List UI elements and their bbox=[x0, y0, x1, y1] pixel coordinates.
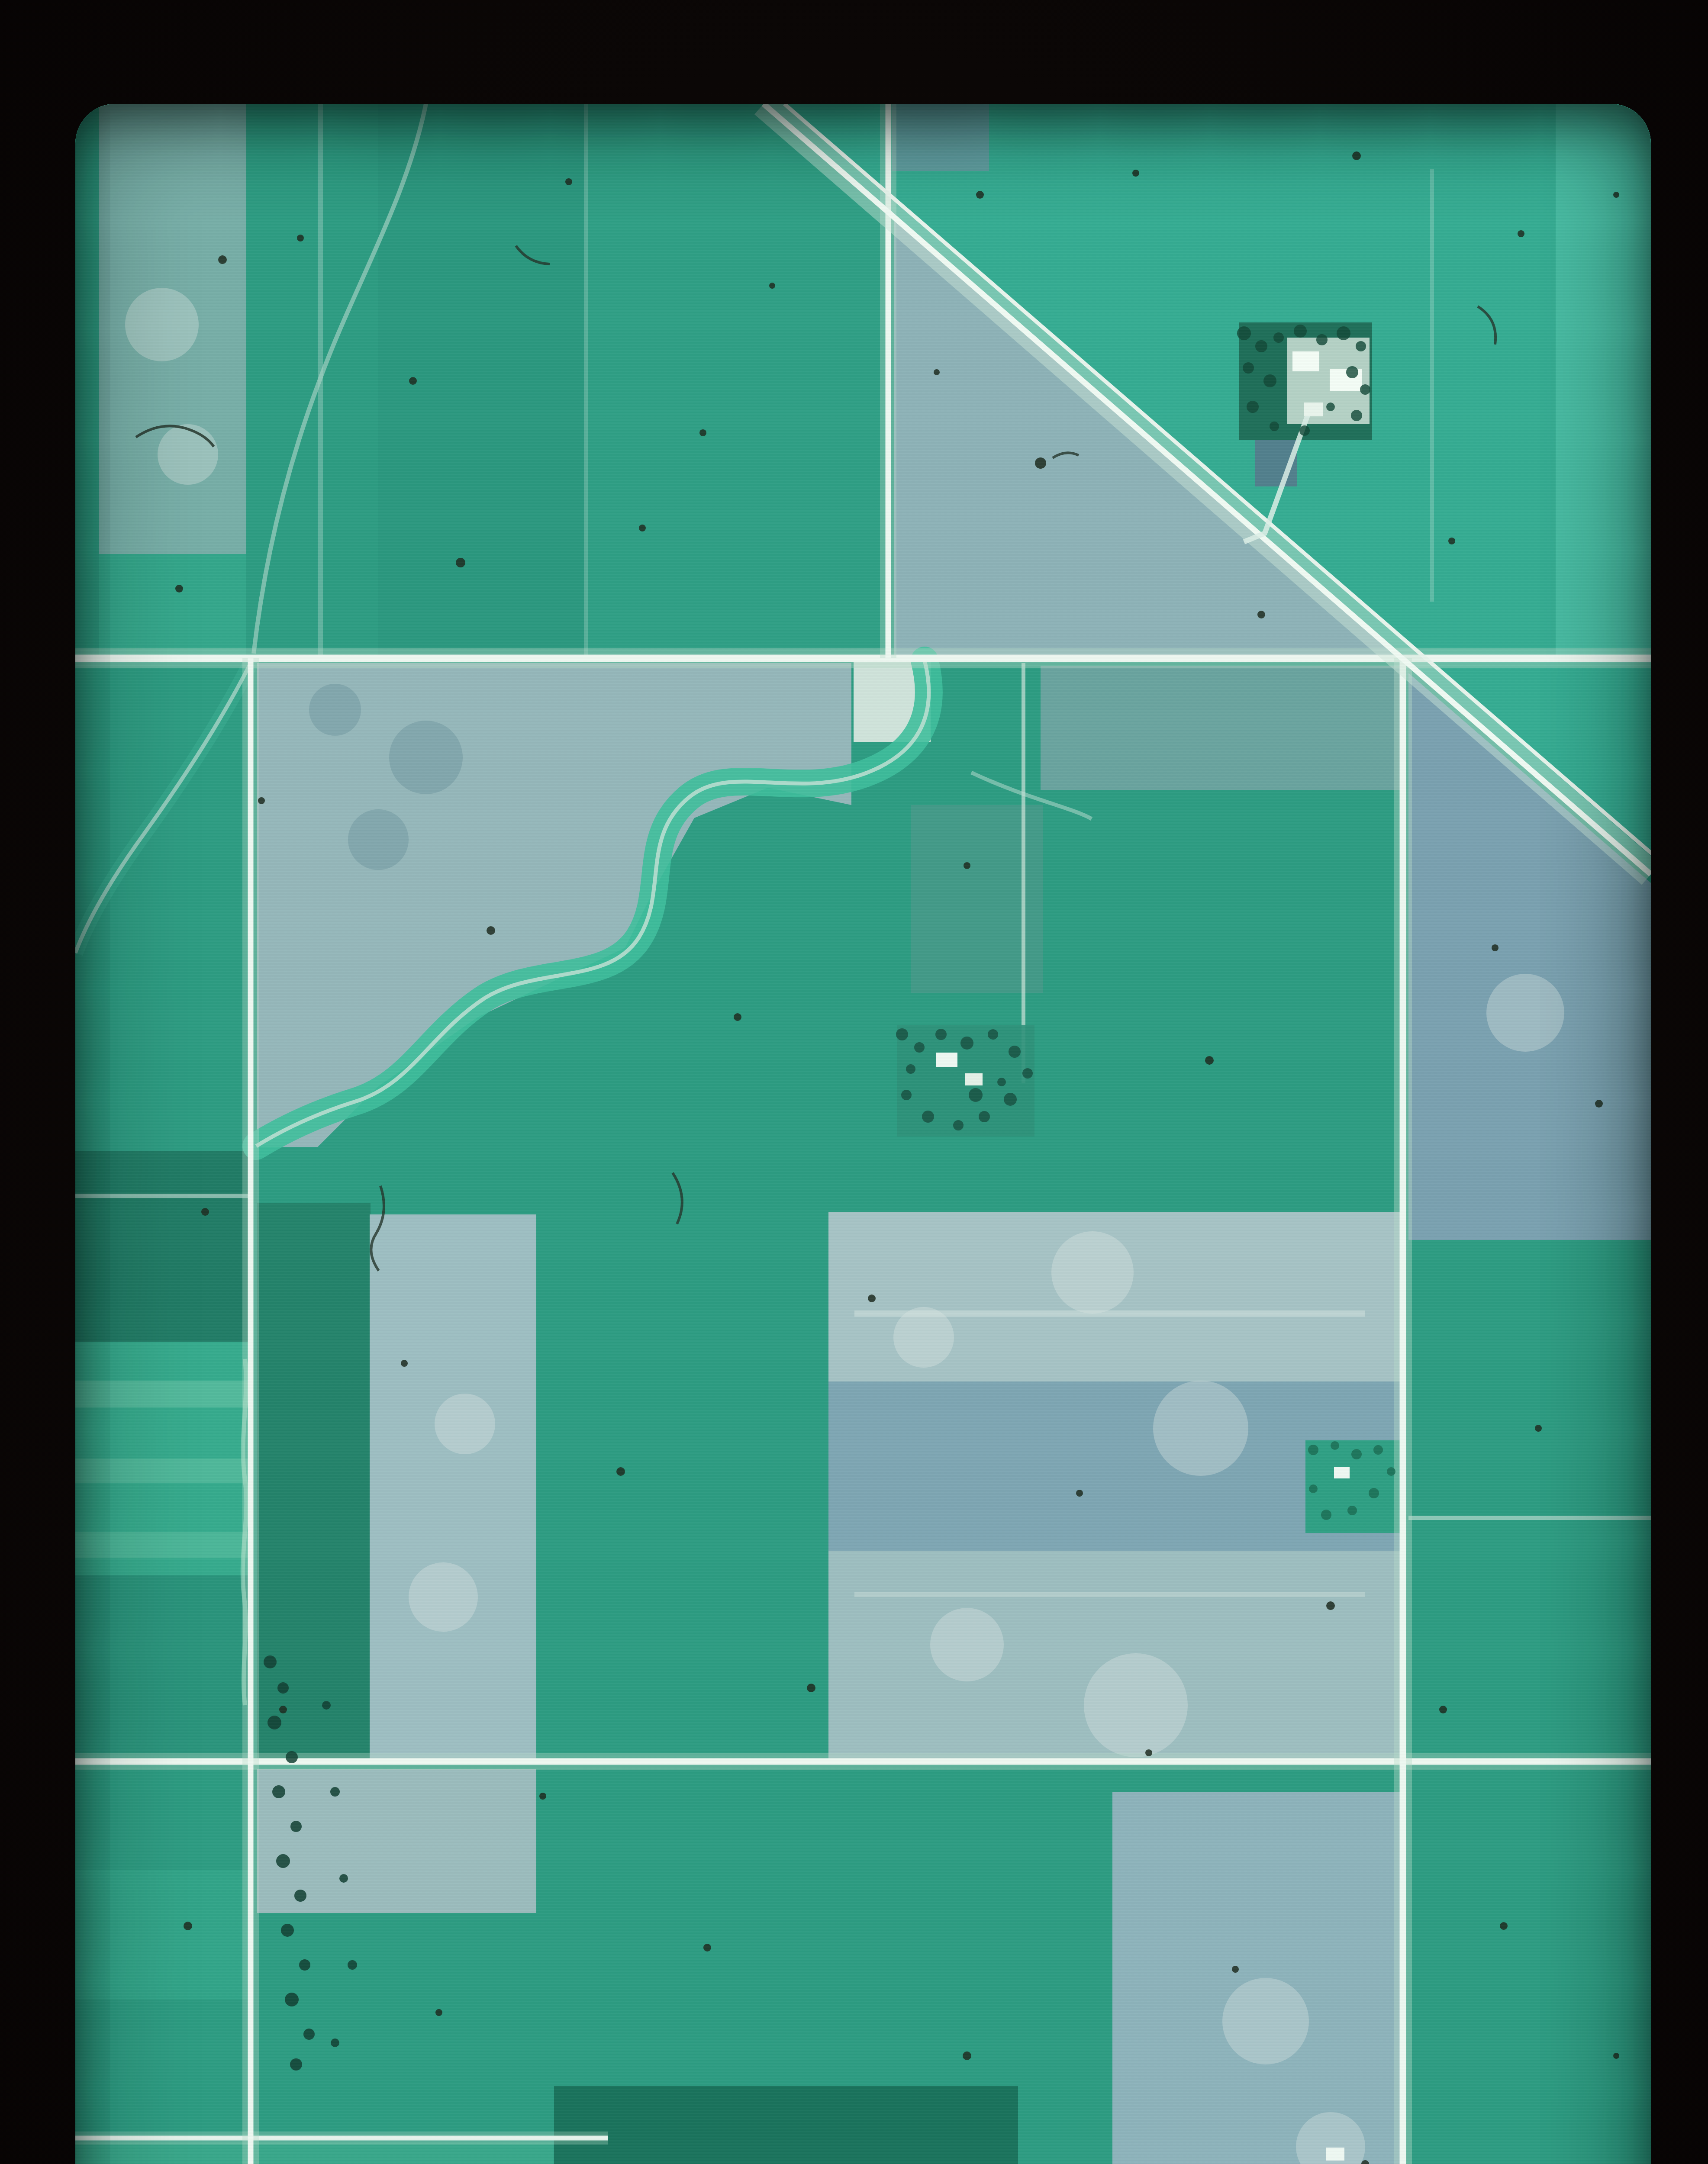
field-r4-left-band bbox=[75, 1870, 251, 2000]
dust-speck bbox=[1613, 192, 1619, 198]
farmstead-3-tree-canopy bbox=[1351, 1449, 1362, 1459]
farmstead-1-building-a bbox=[1292, 351, 1319, 371]
field-r1-left-green-lower bbox=[99, 554, 246, 661]
field-r3-left-dark bbox=[75, 1151, 251, 1342]
fallow-mottle-light bbox=[1222, 1978, 1309, 2064]
field-r3-left-lower bbox=[75, 1575, 251, 1764]
dust-speck bbox=[1500, 1922, 1508, 1930]
dust-speck bbox=[218, 255, 227, 264]
field-boundary-r3-left bbox=[75, 1194, 251, 1198]
field-r3-east-of-road-dark bbox=[257, 1203, 371, 1764]
farmstead-3-tree-canopy bbox=[1331, 1441, 1339, 1450]
farmstead-2-tree-canopy bbox=[906, 1064, 915, 1074]
farmstead-3-tree-canopy bbox=[1321, 1510, 1331, 1520]
dust-speck bbox=[1035, 457, 1046, 469]
farmstead-1-tree-canopy bbox=[1316, 334, 1328, 345]
farmstead-1-tree-canopy bbox=[1243, 362, 1254, 374]
field-r3-left-streak-c bbox=[75, 1532, 251, 1558]
farmstead-3-tree-canopy bbox=[1309, 1485, 1318, 1493]
field-r2-gray-tint bbox=[1041, 666, 1401, 790]
farmstead-2-building-b bbox=[965, 1073, 983, 1085]
dust-speck bbox=[1448, 538, 1455, 544]
fallow-mottle-light bbox=[158, 424, 218, 485]
farmstead-2-tree-canopy bbox=[979, 1111, 990, 1122]
aerial-photo-canvas bbox=[75, 104, 1651, 2164]
farmstead-1-tree-canopy bbox=[1346, 366, 1358, 378]
dust-speck bbox=[616, 1467, 625, 1476]
white-barn-west-of-road bbox=[1326, 2148, 1344, 2161]
dust-speck bbox=[699, 429, 706, 436]
dust-speck bbox=[1352, 151, 1361, 160]
shelterbelt-roadside-trees bbox=[285, 1993, 299, 2006]
shelterbelt-roadside-trees bbox=[303, 2029, 315, 2040]
dust-speck bbox=[1492, 944, 1499, 951]
fallow-mottle-light bbox=[893, 1307, 954, 1368]
dust-speck bbox=[435, 2009, 442, 2016]
farmstead-1-tree-canopy bbox=[1356, 341, 1366, 351]
shelterbelt-roadside-trees bbox=[264, 1655, 277, 1668]
field-r3-block-streak-b bbox=[854, 1592, 1365, 1597]
shelterbelt-roadside-trees bbox=[331, 2038, 339, 2047]
slide-mount bbox=[0, 0, 1708, 2164]
dust-speck bbox=[184, 1922, 192, 1930]
farmstead-2-tree-canopy bbox=[1004, 1093, 1017, 1106]
dust-speck bbox=[703, 1944, 711, 1951]
shelterbelt-roadside-trees bbox=[277, 1682, 289, 1694]
shelterbelt-roadside-trees bbox=[267, 1716, 281, 1729]
shelterbelt-roadside-trees bbox=[276, 1854, 290, 1868]
dust-speck bbox=[963, 2051, 971, 2060]
farmstead-1-building-c bbox=[1304, 403, 1323, 416]
dust-speck bbox=[1132, 170, 1139, 177]
farmstead-2-tree-canopy bbox=[901, 1090, 912, 1100]
farmstead-1-tree-canopy bbox=[1360, 384, 1370, 395]
dust-speck bbox=[734, 1013, 741, 1021]
farmstead-2-tree-canopy bbox=[960, 1037, 973, 1050]
field-r1-corner-gray-patch bbox=[892, 104, 989, 171]
field-r3-gray-strip bbox=[370, 1214, 536, 1759]
fallow-mottle-light bbox=[930, 1608, 1004, 1681]
farmstead-3-building bbox=[1334, 1467, 1350, 1478]
dust-speck bbox=[175, 585, 183, 593]
farmstead-1-tree-canopy bbox=[1247, 401, 1259, 413]
field-boundary-r3-right bbox=[1408, 1516, 1651, 1520]
dust-speck bbox=[279, 1706, 287, 1713]
dust-speck bbox=[769, 283, 775, 289]
farmstead-3-tree-canopy bbox=[1369, 1488, 1379, 1498]
field-r3-left-streak-a bbox=[75, 1381, 251, 1407]
shelterbelt-roadside-trees bbox=[339, 1874, 348, 1883]
farmstead-1-tree-canopy bbox=[1273, 332, 1284, 343]
fallow-mottle-dark bbox=[309, 684, 361, 736]
farmstead-1-tree-canopy bbox=[1263, 374, 1276, 387]
farmstead-2-tree-canopy bbox=[1022, 1068, 1033, 1079]
dust-speck bbox=[487, 926, 495, 935]
dust-speck bbox=[1439, 1706, 1447, 1713]
dust-speck bbox=[1076, 1490, 1083, 1497]
shelterbelt-roadside-trees bbox=[330, 1787, 340, 1797]
shelterbelt-roadside-trees bbox=[294, 1890, 306, 1902]
fallow-mottle-light bbox=[1486, 974, 1564, 1052]
dust-speck bbox=[964, 862, 970, 869]
fallow-mottle-dark bbox=[348, 809, 409, 870]
field-boundary-r1-b bbox=[584, 104, 588, 660]
farmstead-2-tree-canopy bbox=[997, 1078, 1006, 1086]
shelterbelt-roadside-trees bbox=[272, 1785, 285, 1798]
shelterbelt-roadside-trees bbox=[281, 1924, 294, 1937]
dust-speck bbox=[539, 1793, 546, 1800]
dust-speck bbox=[1326, 1601, 1335, 1610]
farmstead-3-tree-canopy bbox=[1373, 1445, 1383, 1455]
farmstead-1-tree-canopy bbox=[1337, 326, 1350, 340]
farmstead-2-tree-canopy bbox=[988, 1029, 998, 1040]
shelterbelt-roadside-trees bbox=[322, 1701, 331, 1710]
dust-speck bbox=[1535, 1425, 1542, 1432]
dust-speck bbox=[1595, 1100, 1603, 1108]
dust-speck bbox=[201, 1208, 209, 1216]
fallow-mottle-light bbox=[1084, 1653, 1188, 1757]
dust-speck bbox=[1232, 1966, 1239, 1973]
farmstead-1-tree-canopy bbox=[1351, 410, 1362, 421]
field-r4-dark-block bbox=[554, 2086, 1018, 2164]
farmstead-1-tree-canopy bbox=[1255, 340, 1267, 352]
dust-speck bbox=[807, 1684, 815, 1692]
fallow-mottle-light bbox=[1051, 1231, 1134, 1314]
dust-speck bbox=[1613, 2053, 1619, 2059]
fallow-mottle-light bbox=[409, 1562, 478, 1632]
dust-speck bbox=[1518, 230, 1524, 237]
dust-speck bbox=[1257, 611, 1265, 618]
farmstead-1-tree-canopy bbox=[1299, 425, 1310, 436]
farmstead-2-tree-canopy bbox=[1009, 1046, 1021, 1058]
shelterbelt-roadside-trees bbox=[299, 1959, 310, 1971]
farmstead-3-tree-canopy bbox=[1308, 1445, 1318, 1455]
dust-speck bbox=[976, 191, 984, 199]
farmstead-2-tree-canopy bbox=[922, 1111, 934, 1123]
farmstead-2-tree-canopy bbox=[896, 1028, 908, 1040]
farmstead-1-tree-canopy bbox=[1294, 325, 1307, 338]
farmstead-2-tree-canopy bbox=[914, 1042, 925, 1053]
fallow-mottle-light bbox=[1153, 1381, 1248, 1476]
field-r4-left-teal bbox=[75, 2142, 554, 2164]
shelterbelt-roadside-trees bbox=[286, 1751, 298, 1763]
dust-speck bbox=[868, 1295, 876, 1302]
shelterbelt-roadside-trees bbox=[290, 2058, 302, 2071]
dust-speck bbox=[639, 525, 646, 531]
dust-speck bbox=[409, 377, 417, 385]
shelterbelt-roadside-trees bbox=[348, 1960, 357, 1970]
shelterbelt-roadside-trees bbox=[290, 1821, 302, 1832]
dust-speck bbox=[934, 369, 940, 375]
farmstead-2-building-a bbox=[936, 1053, 957, 1067]
farmstead-3-tree-canopy bbox=[1387, 1467, 1395, 1476]
dust-speck bbox=[1145, 1749, 1152, 1756]
fallow-mottle-light bbox=[125, 288, 199, 361]
fallow-mottle-dark bbox=[389, 721, 463, 794]
farmstead-1-tree-canopy bbox=[1237, 326, 1251, 340]
farmstead-3-tree-canopy bbox=[1347, 1506, 1357, 1515]
farmstead-2-tree-canopy bbox=[953, 1120, 964, 1130]
farmstead-2-tree-canopy bbox=[969, 1088, 983, 1102]
dust-speck bbox=[297, 235, 304, 242]
field-boundary-r1-right bbox=[1430, 169, 1434, 602]
field-r1-mint-edge bbox=[1556, 104, 1651, 662]
aerial-photograph bbox=[75, 104, 1651, 2164]
dust-speck bbox=[1205, 1056, 1214, 1065]
farmstead-1-tree-canopy bbox=[1326, 403, 1335, 411]
dust-speck bbox=[401, 1360, 408, 1367]
field-track-r2 bbox=[1022, 663, 1025, 1083]
dust-speck bbox=[258, 797, 265, 804]
field-r4-br-fallow bbox=[1112, 1792, 1404, 2164]
dust-speck bbox=[456, 558, 465, 567]
farmstead-2-tree-canopy bbox=[935, 1029, 947, 1040]
dust-speck bbox=[565, 178, 572, 185]
fallow-mottle-light bbox=[435, 1394, 495, 1454]
farmstead-1-tree-canopy bbox=[1270, 422, 1279, 431]
field-r3-left-streak-b bbox=[75, 1459, 251, 1483]
